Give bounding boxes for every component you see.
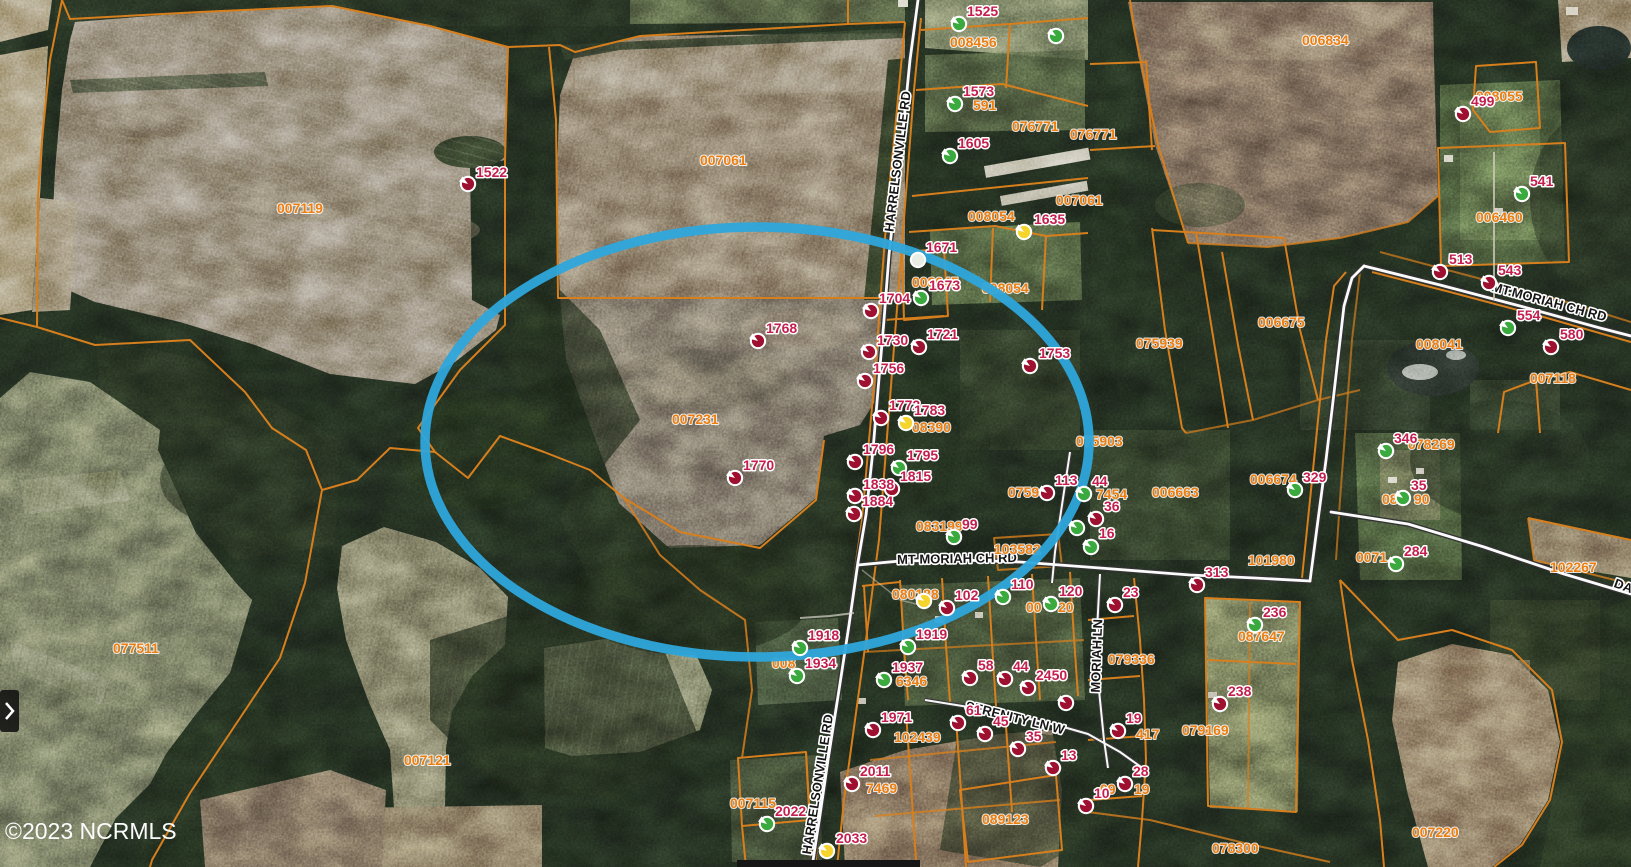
svg-text:075939: 075939 <box>1136 335 1183 351</box>
svg-text:1768: 1768 <box>766 320 797 336</box>
svg-text:076771: 076771 <box>1070 126 1117 142</box>
svg-text:1525: 1525 <box>967 3 998 19</box>
svg-text:1918: 1918 <box>808 627 839 643</box>
svg-text:499: 499 <box>1471 93 1495 109</box>
svg-text:101980: 101980 <box>1248 552 1295 568</box>
svg-text:2450: 2450 <box>1036 667 1067 683</box>
svg-text:1522: 1522 <box>476 164 507 180</box>
svg-text:1919: 1919 <box>916 626 947 642</box>
svg-text:35: 35 <box>1026 728 1042 744</box>
svg-text:1783: 1783 <box>914 402 945 418</box>
svg-text:076771: 076771 <box>1012 118 1059 134</box>
svg-text:1635: 1635 <box>1034 211 1065 227</box>
svg-text:075903: 075903 <box>1076 433 1123 449</box>
svg-text:007061: 007061 <box>700 152 747 168</box>
svg-text:120: 120 <box>1059 583 1083 599</box>
svg-text:1704: 1704 <box>879 290 910 306</box>
svg-text:007118: 007118 <box>1530 370 1576 386</box>
svg-text:1795: 1795 <box>907 447 938 463</box>
svg-text:077511: 077511 <box>113 640 159 656</box>
svg-text:008041: 008041 <box>1416 336 1463 352</box>
svg-text:087647: 087647 <box>1238 628 1285 644</box>
svg-text:554: 554 <box>1517 307 1541 323</box>
svg-text:102439: 102439 <box>894 729 941 745</box>
svg-text:45: 45 <box>993 713 1009 729</box>
svg-text:236: 236 <box>1263 604 1287 620</box>
svg-text:7469: 7469 <box>866 780 897 796</box>
svg-text:102267: 102267 <box>1550 559 1597 575</box>
svg-text:16: 16 <box>1099 525 1115 541</box>
svg-text:1756: 1756 <box>873 360 904 376</box>
svg-text:1753: 1753 <box>1039 345 1070 361</box>
svg-text:006675: 006675 <box>1258 314 1305 330</box>
svg-text:008456: 008456 <box>950 34 997 50</box>
svg-text:0759: 0759 <box>1008 484 1039 500</box>
svg-text:078300: 078300 <box>1212 840 1259 856</box>
svg-text:1971: 1971 <box>881 709 912 725</box>
svg-text:99: 99 <box>962 516 978 532</box>
svg-text:007231: 007231 <box>672 411 719 427</box>
svg-text:1815: 1815 <box>900 468 931 484</box>
svg-text:089123: 089123 <box>982 811 1029 827</box>
svg-text:1838: 1838 <box>863 476 894 492</box>
svg-text:19: 19 <box>1126 710 1142 726</box>
svg-text:6346: 6346 <box>896 673 927 689</box>
svg-text:23: 23 <box>1123 584 1139 600</box>
svg-text:MORIAH LN: MORIAH LN <box>1088 619 1106 693</box>
svg-text:36: 36 <box>1104 498 1120 514</box>
svg-text:008054: 008054 <box>968 208 1015 224</box>
svg-text:1605: 1605 <box>958 135 989 151</box>
svg-text:1573: 1573 <box>963 83 994 99</box>
svg-text:1937: 1937 <box>892 659 923 675</box>
svg-text:08390: 08390 <box>912 419 951 435</box>
svg-text:10: 10 <box>1094 785 1110 801</box>
svg-text:2033: 2033 <box>836 830 867 846</box>
svg-text:©2023 NCRMLS: ©2023 NCRMLS <box>5 818 177 844</box>
svg-text:113: 113 <box>1055 472 1078 488</box>
svg-text:35: 35 <box>1411 477 1427 493</box>
svg-text:007115: 007115 <box>730 795 776 811</box>
svg-text:1884: 1884 <box>862 493 893 509</box>
svg-text:543: 543 <box>1498 262 1522 278</box>
svg-text:313: 313 <box>1205 564 1229 580</box>
svg-text:2022: 2022 <box>775 803 806 819</box>
svg-text:2011: 2011 <box>860 763 891 779</box>
svg-text:329: 329 <box>1303 469 1327 485</box>
svg-text:00: 00 <box>1026 599 1042 615</box>
svg-text:238: 238 <box>1228 683 1252 699</box>
svg-text:20: 20 <box>1058 599 1074 615</box>
svg-text:19: 19 <box>1134 781 1150 797</box>
svg-text:1796: 1796 <box>863 441 894 457</box>
svg-text:1934: 1934 <box>805 655 836 671</box>
svg-text:541: 541 <box>1530 173 1554 189</box>
svg-text:1770: 1770 <box>743 457 774 473</box>
svg-text:513: 513 <box>1449 251 1473 267</box>
svg-text:1673: 1673 <box>929 277 960 293</box>
svg-text:079336: 079336 <box>1108 651 1155 667</box>
svg-text:1730: 1730 <box>877 332 908 348</box>
svg-text:006663: 006663 <box>1152 484 1199 500</box>
svg-text:44: 44 <box>1092 473 1108 489</box>
svg-text:1671: 1671 <box>926 239 957 255</box>
svg-text:079169: 079169 <box>1182 722 1229 738</box>
svg-text:007119: 007119 <box>277 200 323 216</box>
svg-text:110: 110 <box>1011 576 1034 592</box>
svg-text:007061: 007061 <box>1056 192 1103 208</box>
svg-text:0071: 0071 <box>1356 549 1387 565</box>
svg-text:13: 13 <box>1061 747 1077 763</box>
svg-text:007220: 007220 <box>1412 824 1459 840</box>
svg-text:007121: 007121 <box>404 752 451 768</box>
svg-text:591: 591 <box>973 97 997 113</box>
svg-text:102: 102 <box>955 587 979 603</box>
svg-text:58: 58 <box>978 657 994 673</box>
svg-text:1721: 1721 <box>927 326 958 342</box>
svg-text:346: 346 <box>1394 430 1418 446</box>
svg-text:284: 284 <box>1404 543 1428 559</box>
svg-text:90: 90 <box>1414 491 1430 507</box>
svg-text:006460: 006460 <box>1476 209 1523 225</box>
svg-text:44: 44 <box>1013 658 1029 674</box>
svg-text:006834: 006834 <box>1302 32 1349 48</box>
svg-text:417: 417 <box>1136 726 1160 742</box>
svg-text:28: 28 <box>1133 763 1149 779</box>
svg-text:61: 61 <box>966 702 982 718</box>
svg-text:580: 580 <box>1560 326 1584 342</box>
